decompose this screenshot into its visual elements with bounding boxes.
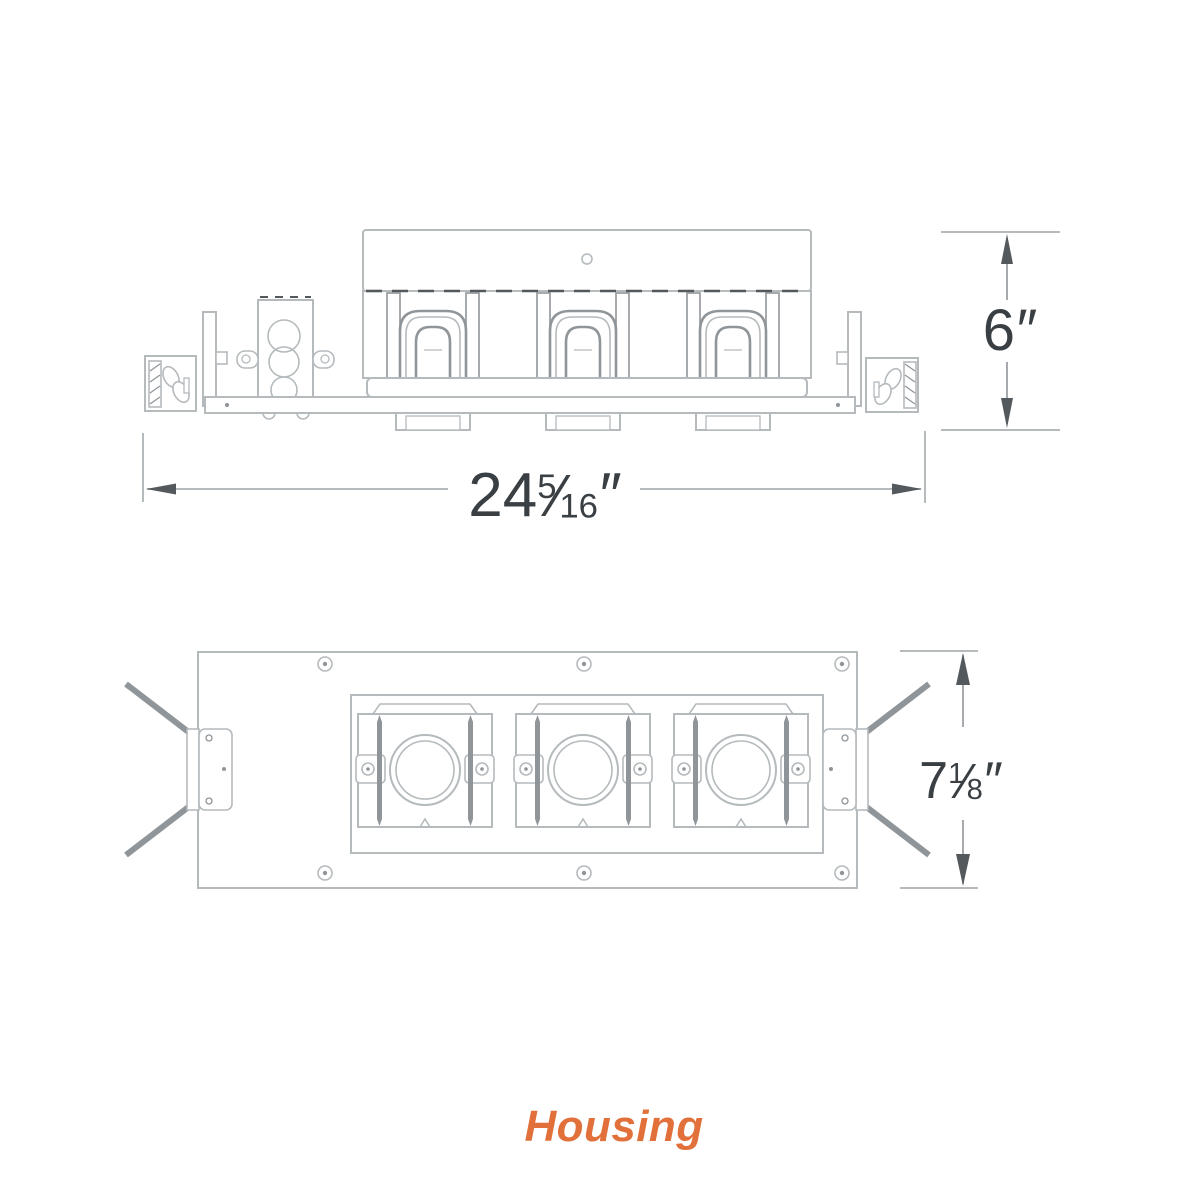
arrow-up-icon [1001,234,1013,264]
dimension-label-elevation-width: 245⁄16″ [468,465,622,527]
hanger-bracket-right [866,358,918,412]
elevation-view [145,230,918,430]
mounting-rail [205,397,855,413]
mounting-plate-left [187,729,232,810]
vertical-plate-left [203,312,216,406]
lamp-module-plan-2 [514,704,652,827]
technical-drawing-page: 245⁄16″ 6″ 71⁄8″ Housing [0,0,1200,1200]
lamp-module-plan-1 [356,704,494,827]
arrow-down-icon [956,854,970,886]
arrow-down-icon [1001,398,1013,428]
mounting-plate-right [823,729,868,810]
junction-box-tab-right [313,351,334,368]
vertical-plate-right [848,312,861,406]
module-base-plate [367,378,807,397]
hanger-bracket-left [145,356,196,411]
junction-box [237,297,334,403]
arrow-up-icon [956,653,970,685]
dimension-label-elevation-height: 6″ [983,302,1038,360]
arrow-left-icon [146,484,176,495]
drawing-caption: Housing [524,1102,703,1152]
lamp-module-plan-3 [672,704,810,827]
junction-box-tab-left [237,351,258,368]
arrow-right-icon [892,484,922,495]
housing-line-drawing [0,0,1200,1200]
hanger-bars-left [126,684,195,855]
dimension-label-plan-height: 71⁄8″ [919,755,1003,807]
plenum-box [363,230,811,291]
plan-view [126,652,929,888]
